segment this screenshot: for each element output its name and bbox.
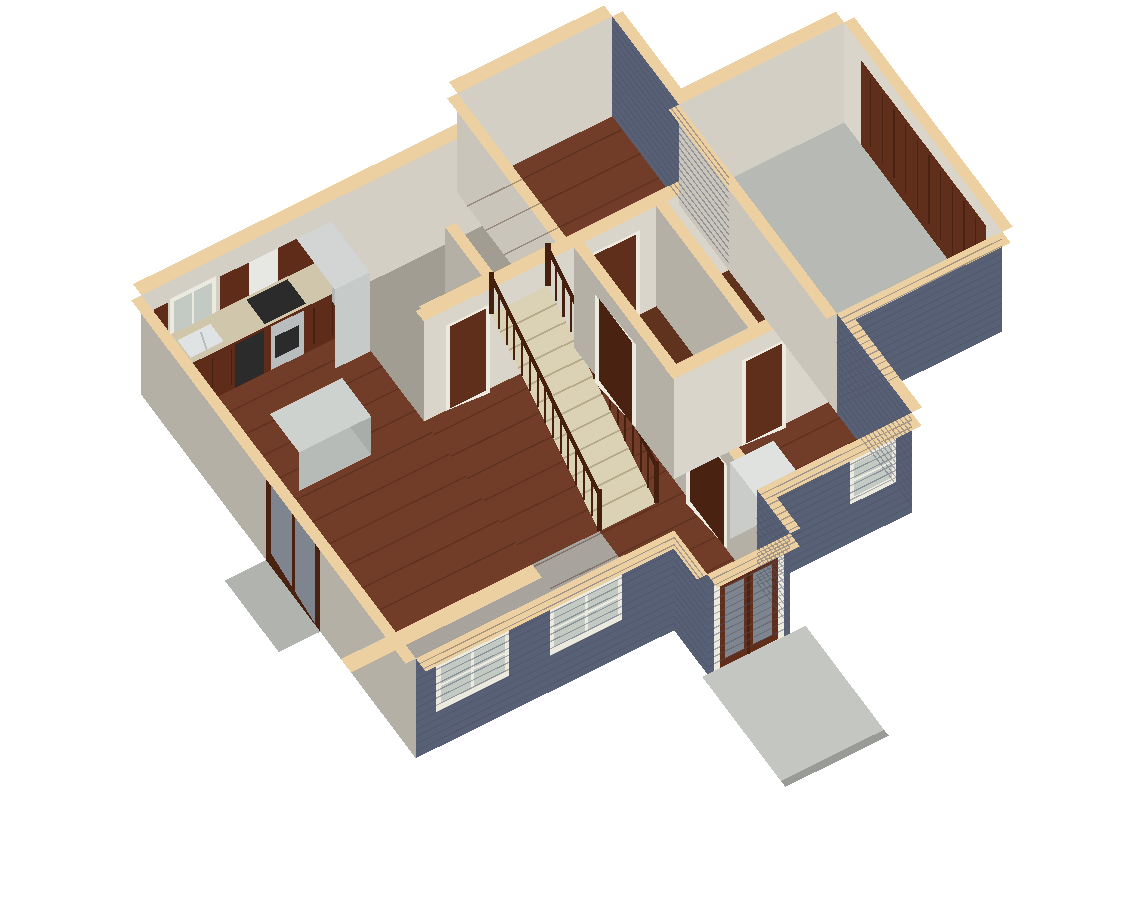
dollhouse-render-canvas <box>0 0 1129 908</box>
house <box>131 5 1012 787</box>
floorplan-3d-scene <box>0 0 1129 908</box>
